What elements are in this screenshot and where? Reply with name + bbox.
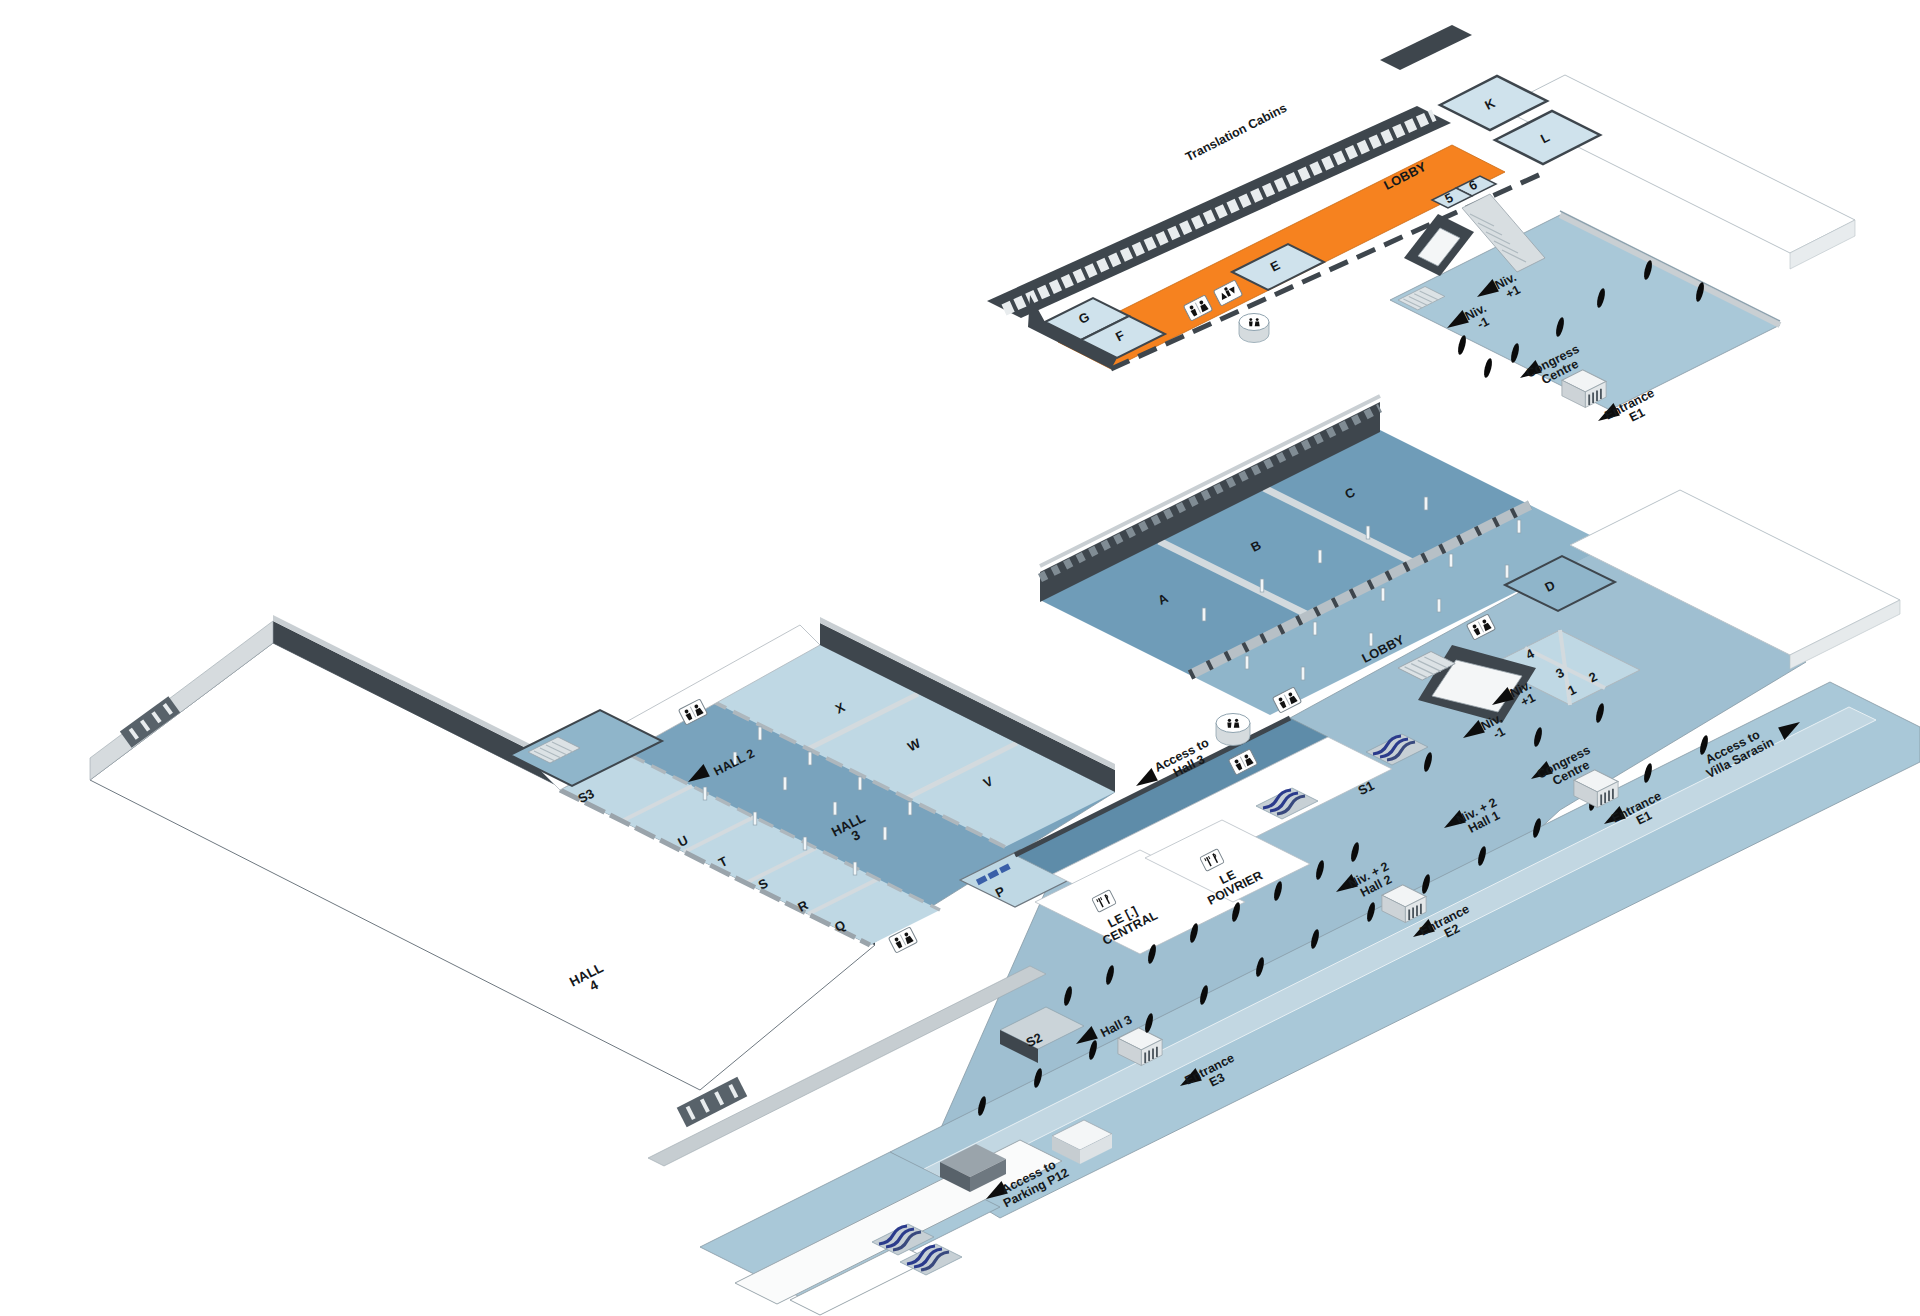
elevator-cylinder	[1216, 714, 1250, 746]
isometric-floorplan: HALL 4 S3	[0, 0, 1920, 1316]
upper-level: Translation Cabins LOBBY G F E K L 6 5	[987, 25, 1855, 434]
translation-cabins-label: Translation Cabins	[1183, 101, 1289, 164]
ground-level: HALL 4 S3	[90, 396, 1920, 1315]
upper-terrace: Niv. +1 Niv. -1 Congress Centre Entrance…	[1390, 194, 1780, 434]
elevator-cylinder	[1239, 314, 1269, 343]
floorplan-map: HALL 4 S3	[0, 0, 1920, 1316]
